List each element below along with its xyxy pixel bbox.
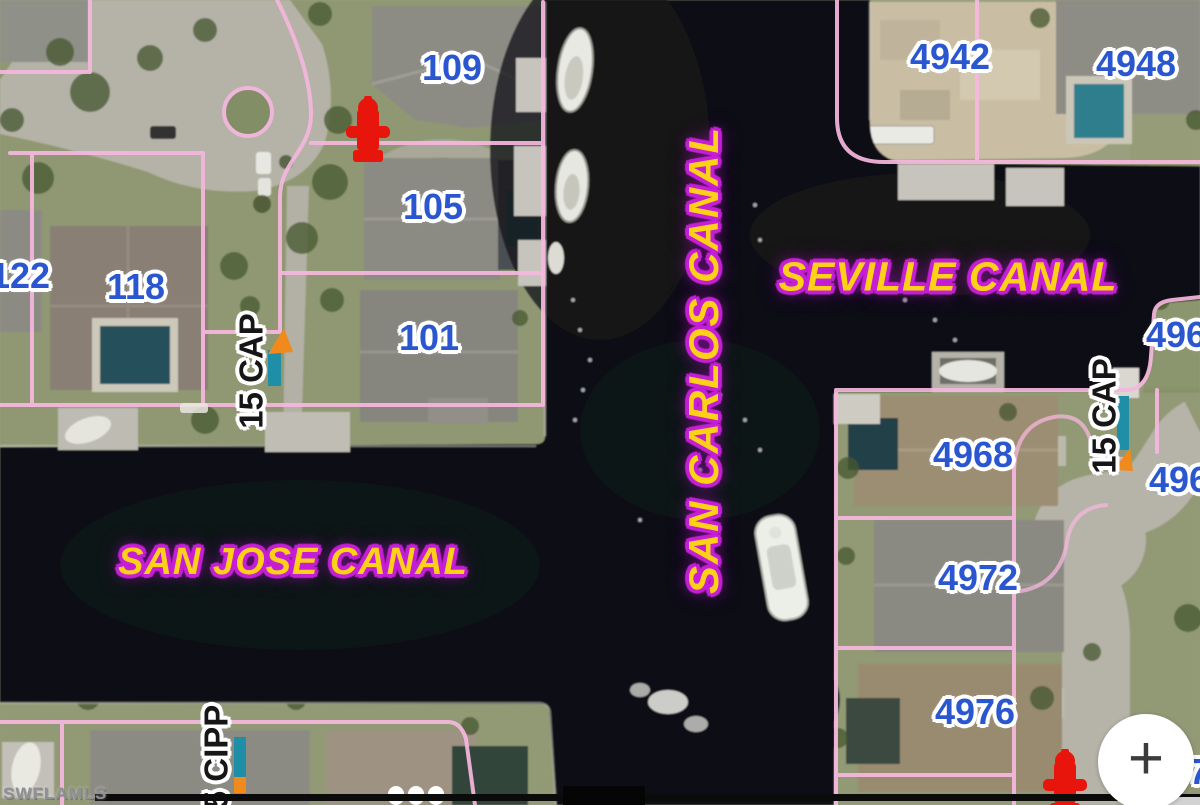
utility-marker-flag (234, 777, 246, 793)
bottom-black-bar (95, 794, 1200, 801)
lot-label-4948: 4948 (1096, 46, 1176, 82)
canal-label-seville: SEVILLE CANAL (779, 257, 1118, 298)
lot-label-118: 118 (107, 269, 165, 305)
lot-label-105: 105 (403, 189, 463, 225)
aerial-imagery (0, 0, 1200, 805)
utility-marker-bar (268, 350, 281, 386)
utility-marker-label-15cap-east: 15 CAP (1088, 358, 1121, 474)
canal-label-san-jose: SAN JOSE CANAL (118, 543, 468, 581)
lot-label-4942: 4942 (910, 39, 990, 75)
lot-label-4964: 4964 (1149, 462, 1200, 498)
boat-on-lift-icon (939, 360, 997, 382)
plus-icon: + (1128, 728, 1164, 790)
boat-icon (548, 242, 564, 274)
utility-marker-label-15cap-west: 15 CAP (235, 313, 268, 429)
lot-label-4972: 4972 (938, 560, 1018, 596)
aerial-map[interactable]: 109 105 101 118 122 4942 4948 4960 4964 … (0, 0, 1200, 805)
utility-marker-label-5cipp: 5 CIPP (200, 705, 233, 805)
lot-label-4960: 4960 (1146, 317, 1200, 353)
lot-label-4976: 4976 (935, 694, 1015, 730)
lot-label-101: 101 (399, 320, 459, 356)
canal-label-san-carlos: SAN CARLOS CANAL (683, 126, 725, 594)
lot-label-109: 109 (422, 50, 482, 86)
bottom-black-bar-segment (563, 786, 645, 805)
lot-label-122: 122 (0, 258, 50, 294)
utility-marker-bar (234, 737, 246, 777)
watermark: SWFLAMLS (3, 784, 107, 804)
zoom-in-button[interactable]: + (1098, 714, 1194, 805)
lot-label-4968: 4968 (933, 437, 1013, 473)
